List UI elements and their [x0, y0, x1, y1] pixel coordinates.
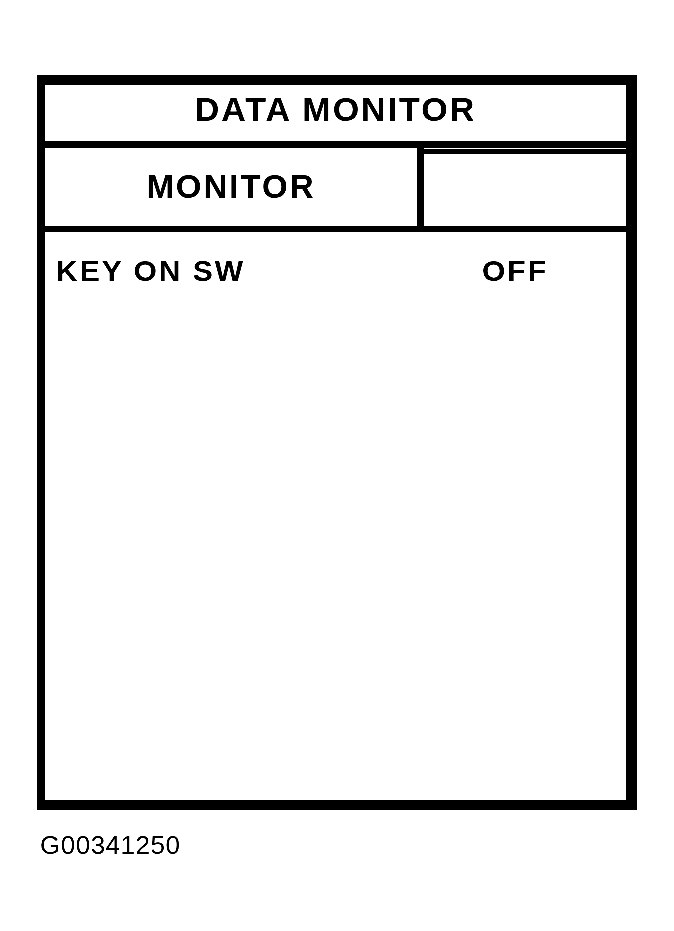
- monitor-item-name: KEY ON SW: [56, 254, 245, 288]
- figure-id: G00341250: [40, 830, 180, 861]
- status-cell-top-border: [424, 149, 626, 154]
- header-vertical-divider: [417, 141, 424, 232]
- title-divider-line: [45, 141, 626, 148]
- scanned-figure-page: DATA MONITOR MONITOR KEY ON SW OFF G0034…: [0, 0, 674, 931]
- panel-title: DATA MONITOR: [45, 85, 626, 141]
- monitor-item-value: OFF: [482, 254, 548, 288]
- data-monitor-panel: DATA MONITOR MONITOR KEY ON SW OFF: [37, 75, 637, 810]
- monitor-column-header: MONITOR: [45, 148, 417, 226]
- header-divider-line: [45, 226, 626, 232]
